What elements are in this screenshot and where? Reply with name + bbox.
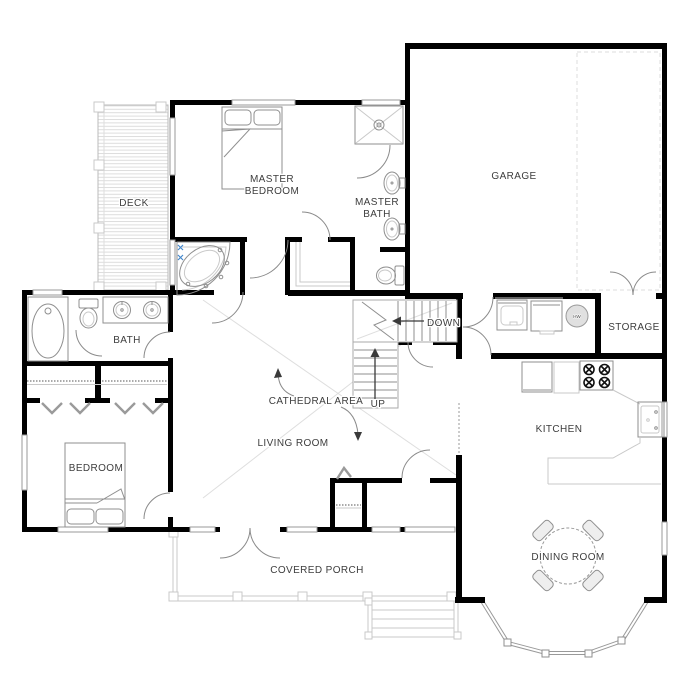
floor-plan: HW [0,0,700,700]
walkin-closet-shelves [296,242,350,286]
master-bath-sink [384,172,405,194]
bath-toilet [79,299,98,328]
deck [94,102,168,292]
stairs-up-label: UP [371,399,386,410]
bay-window [482,601,647,657]
mudroom: HW [495,298,588,334]
room-label-living-room: LIVING ROOM [257,438,328,449]
corner-tub [172,237,232,295]
room-label-bath: BATH [113,335,141,346]
master-bath-toilet [377,266,405,285]
kitchen-peninsula [548,437,661,484]
covered-porch [169,528,461,639]
water-heater-label: HW [573,314,581,319]
area-label-cathedral: CATHEDRAL AREA [269,396,364,407]
bath-tub [28,297,68,361]
floor-plan-canvas: HW [0,0,700,700]
room-label-master-bedroom-1: MASTER [250,174,294,185]
utility-sink [497,300,527,330]
slope-arrow-icon [278,374,294,396]
garage-parking-area [577,52,660,290]
stove [580,361,613,390]
room-label-master-bath-1: MASTER [355,197,399,208]
room-label-bedroom: BEDROOM [69,463,123,474]
master-bath-shower [355,106,403,144]
entry-closet [336,468,361,508]
water-heater: HW [566,305,588,327]
kitchen-appliances [522,361,664,484]
fridge [522,362,552,392]
bedroom-bed [65,443,125,527]
counter-edge [613,390,640,404]
room-label-deck: DECK [119,198,148,209]
room-label-master-bedroom-2: BEDROOM [245,186,299,197]
kitchen-counter [554,362,579,393]
room-label-garage: GARAGE [491,171,536,182]
master-bath-sink [384,218,405,240]
kitchen-sink [638,402,664,437]
bath-vanity [103,297,168,323]
room-label-dining-room: DINING ROOM [531,552,604,563]
stairs-down-label: DOWN [427,318,460,329]
porch-steps [365,598,461,639]
room-label-kitchen: KITCHEN [536,424,583,435]
closet-hanger-icons [42,403,163,413]
room-label-master-bath-2: BATH [363,209,391,220]
slope-arrow-icon [341,407,358,434]
room-label-covered-porch: COVERED PORCH [270,565,364,576]
washer [531,301,562,334]
closet-hanger-icon [337,468,351,479]
room-label-storage: STORAGE [608,322,660,333]
